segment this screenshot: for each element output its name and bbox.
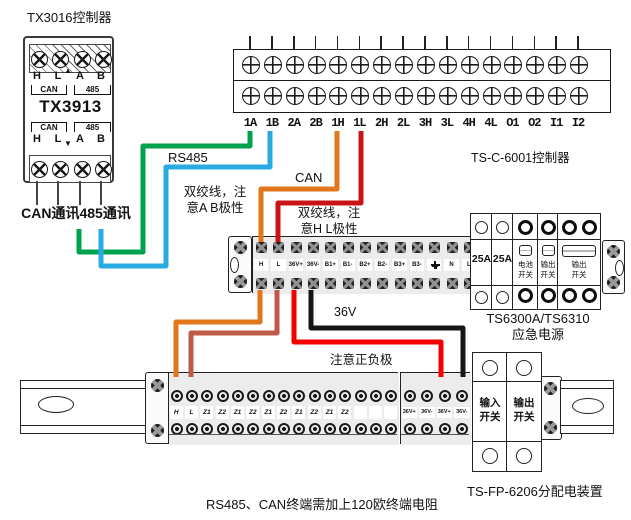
screw-terminal-x — [52, 51, 69, 68]
terminal-label: Z1 — [323, 406, 336, 419]
bottom-terminal-strip: HLZ1Z2Z1Z2Z1Z2Z1Z2Z1Z2 — [168, 372, 398, 444]
terminal-screw — [370, 390, 382, 402]
terminal-label — [354, 406, 367, 419]
switch-rocker — [562, 245, 596, 257]
controller-terminal-label: 3H — [413, 116, 437, 130]
terminal-screw — [273, 278, 284, 289]
module-line — [538, 285, 558, 286]
terminal-label: Z2 — [338, 406, 351, 419]
psu-fuse-module: 25A — [491, 213, 514, 310]
device-model-label: TX3913 — [25, 97, 116, 117]
controller-terminal-label: 2A — [282, 116, 306, 130]
controller-pin — [315, 36, 317, 49]
switch-label: 电池 开关 — [513, 260, 538, 279]
switch-terminal — [541, 288, 556, 303]
bracket-screw — [234, 275, 247, 288]
terminal-screw — [186, 423, 198, 435]
switch-terminal — [562, 288, 577, 303]
controller-terminal — [504, 56, 522, 74]
terminal-screw — [325, 242, 336, 253]
fuse-rating-label: 25A — [471, 253, 492, 265]
controller-terminal-label: 2H — [369, 116, 393, 130]
module-line — [492, 239, 513, 240]
controller-terminal — [373, 87, 391, 105]
terminal-label — [384, 406, 397, 419]
h-down-wire — [176, 290, 260, 377]
terminal-screw — [293, 423, 305, 435]
controller-terminal — [417, 87, 435, 105]
terminal-label: B2+ — [358, 259, 372, 271]
bottom-terminal-cell: Z2 — [246, 373, 262, 445]
controller-pin — [271, 36, 273, 49]
mid-terminal-cell: B1+ — [322, 237, 340, 294]
rail-slot — [572, 398, 604, 414]
terminal-screw — [247, 423, 259, 435]
switch-terminal — [541, 220, 556, 235]
485-bracket-bottom: 485 — [74, 122, 111, 132]
bracket-screw — [607, 276, 620, 289]
fuse-terminal — [496, 221, 509, 234]
switch-terminal — [516, 360, 532, 376]
bottom-terminal-cell: Z2 — [276, 373, 292, 445]
tx3913-device: CAN 485 TX3913 CAN 485 — [23, 36, 114, 183]
terminal-screw — [325, 278, 336, 289]
bracket-slot — [230, 257, 239, 273]
controller-pin — [249, 36, 251, 49]
terminal-label: N — [444, 259, 458, 271]
bracket-screw — [544, 421, 557, 434]
switch-label: 输出 开关 — [538, 260, 558, 279]
module-line — [471, 285, 492, 286]
module-line — [513, 239, 538, 240]
terminal-screw — [309, 423, 321, 435]
tx3016-title: TX3016控制器 — [27, 7, 112, 26]
switch-terminal — [516, 448, 532, 464]
controller-terminal — [264, 87, 282, 105]
note-can: CAN — [295, 170, 322, 185]
controller-pin — [337, 36, 339, 49]
terminal-screw — [370, 423, 382, 435]
mid-terminal-cell: B1- — [340, 237, 358, 294]
psu-fuse-module: 25A — [470, 213, 493, 310]
mid-terminal-cell: B2+ — [357, 237, 375, 294]
terminal-label: Z2 — [216, 406, 229, 419]
controller-terminal — [417, 56, 435, 74]
controller-terminal — [308, 87, 326, 105]
module-line — [507, 381, 541, 382]
mid-terminal-cell: 36V+ — [288, 237, 306, 294]
controller-terminal — [439, 87, 457, 105]
controller-terminal — [351, 56, 369, 74]
controller-terminal — [504, 87, 522, 105]
rail-slot — [38, 396, 74, 413]
controller-terminal-label: 2B — [304, 116, 328, 130]
terminal-label: B3+ — [392, 259, 406, 271]
terminal-screw — [343, 278, 354, 289]
terminal-label: L — [271, 259, 285, 271]
controller-terminal — [483, 56, 501, 74]
mid-terminal-cell — [426, 237, 444, 294]
terminal-label: 36V+ — [437, 407, 453, 418]
terminal-label: Z2 — [277, 406, 290, 419]
terminal-screw — [291, 242, 302, 253]
terminal-screw — [247, 390, 259, 402]
switch-terminal — [562, 220, 577, 235]
terminal-lead — [100, 181, 101, 205]
terminal-screw — [278, 423, 290, 435]
controller-terminal — [242, 56, 260, 74]
dist-switch-label: 输出 开关 — [507, 397, 541, 424]
screw-terminal-x — [95, 161, 112, 178]
bracket-screw — [151, 379, 164, 392]
controller-terminal-label: I1 — [544, 116, 568, 130]
controller-terminal — [439, 56, 457, 74]
module-line — [473, 441, 507, 442]
terminal-screw — [171, 390, 183, 402]
controller-terminal — [308, 56, 326, 74]
terminal-screw — [278, 390, 290, 402]
bracket-screw — [607, 245, 620, 258]
end-bracket-left-bottom — [145, 372, 170, 444]
mid-terminal-cell: 36V- — [305, 237, 323, 294]
screw-terminal-x — [31, 161, 48, 178]
terminal-screw — [429, 242, 440, 253]
terminal-screw — [256, 242, 267, 253]
terminal-screw — [439, 390, 451, 402]
terminal-screw — [324, 390, 336, 402]
module-line — [538, 239, 558, 240]
terminal-screw — [412, 242, 423, 253]
terminal-screw — [355, 390, 367, 402]
bottom-terminal-cell: Z1 — [200, 373, 216, 445]
v36-terminal-block: 36V+36V-36V+36V- — [400, 372, 470, 444]
v36-terminal-cell: 36V+ — [401, 373, 420, 445]
module-line — [492, 285, 513, 286]
mid-terminal-cell: H — [253, 237, 271, 294]
terminal-screw — [339, 390, 351, 402]
bottom-terminal-cell: Z2 — [307, 373, 323, 445]
terminal-label: H — [254, 259, 268, 271]
controller-terminal — [329, 56, 347, 74]
controller-terminal — [461, 56, 479, 74]
controller-terminal — [395, 56, 413, 74]
terminal-label: B3- — [410, 259, 424, 271]
device-pin-label: B — [93, 133, 109, 146]
controller-pin — [424, 36, 426, 49]
end-bracket-right-bottom — [540, 376, 562, 440]
terminal-screw — [343, 242, 354, 253]
module-line — [473, 381, 507, 382]
bottom-terminal-cell: L — [184, 373, 200, 445]
terminal-label: B1+ — [323, 259, 337, 271]
v36-terminal-cell: 36V- — [454, 373, 472, 445]
switch-label: 输出 开关 — [558, 260, 600, 279]
device-pin-label: A — [72, 70, 88, 83]
controller-pin — [359, 36, 361, 49]
terminal-lead — [36, 181, 37, 205]
switch-terminal — [518, 220, 533, 235]
terminal-label — [427, 259, 441, 271]
bottom-terminal-cell: Z1 — [261, 373, 277, 445]
controller-pin — [512, 36, 514, 49]
mid-terminal-cell: B3- — [409, 237, 427, 294]
terminal-screw — [421, 390, 433, 402]
device-caption: CAN通讯485通讯 — [2, 203, 150, 223]
device-pin-label: H — [29, 70, 45, 83]
controller-terminal-label: 3L — [435, 116, 459, 130]
terminal-screw — [324, 423, 336, 435]
terminal-screw — [395, 242, 406, 253]
psu-switch-module: 输出 开关 — [557, 213, 601, 310]
terminal-label: 36V- — [306, 259, 320, 271]
controller-terminal-label: 4L — [479, 116, 503, 130]
switch-terminal — [582, 288, 597, 303]
terminal-label: 36V+ — [289, 259, 303, 271]
switch-rocker — [542, 245, 555, 256]
terminal-label: Z2 — [246, 406, 259, 419]
terminal-screw — [339, 423, 351, 435]
controller-terminal — [329, 87, 347, 105]
terminal-screw — [385, 390, 397, 402]
switch-rocker — [519, 245, 532, 256]
controller-terminal-label: O1 — [500, 116, 524, 130]
dist-switch-module: 输入 开关 — [472, 352, 508, 472]
device-pin-label: H — [29, 133, 45, 146]
l-down-wire — [191, 290, 277, 377]
v36-terminal-cell: 36V- — [419, 373, 438, 445]
screw-terminal-x — [74, 161, 91, 178]
controller-terminal-label: 1A — [238, 116, 262, 130]
can-bracket-top: CAN — [31, 85, 67, 95]
mid-terminal-cell: B3+ — [391, 237, 409, 294]
terminal-lead — [57, 181, 58, 205]
controller-terminal — [526, 87, 544, 105]
terminal-screw — [232, 423, 244, 435]
mid-terminal-cell: B2- — [374, 237, 392, 294]
terminal-screw — [377, 278, 388, 289]
din-rail-right — [560, 380, 614, 434]
terminal-label: B1- — [341, 259, 355, 271]
controller-pin — [293, 36, 295, 49]
bottom-terminal-cell — [368, 373, 384, 445]
strip-divider — [234, 80, 610, 81]
end-bracket-left-mid — [228, 236, 252, 293]
terminal-screw — [429, 278, 440, 289]
controller-pin — [446, 36, 448, 49]
can-bracket-bottom: CAN — [31, 122, 67, 132]
controller-terminal — [286, 56, 304, 74]
controller-terminal — [242, 87, 260, 105]
controller-terminal — [395, 87, 413, 105]
terminal-screw — [308, 242, 319, 253]
din-rail-left — [20, 380, 150, 434]
footer-note: RS485、CAN终端需加上120欧终端电阻 — [206, 494, 438, 513]
module-line — [513, 285, 538, 286]
controller-terminal-label: 4H — [457, 116, 481, 130]
device-pin-label: B — [93, 70, 109, 83]
bracket-screw — [151, 424, 164, 437]
note-twisted-ab: 双绞线，注 意A B极性 — [170, 184, 260, 216]
controller-terminal — [373, 56, 391, 74]
bottom-terminal-cell — [353, 373, 369, 445]
controller-terminal — [351, 87, 369, 105]
terminal-label: B2- — [375, 259, 389, 271]
device-pin-label: L — [50, 133, 66, 146]
ground-icon — [430, 261, 440, 270]
terminal-screw — [217, 390, 229, 402]
terminal-label — [369, 406, 382, 419]
controller-pin — [534, 36, 536, 49]
note-polarity: 注意正负极 — [330, 349, 393, 368]
terminal-screw — [456, 390, 468, 402]
end-bracket-right-mid — [602, 240, 625, 294]
terminal-screw — [395, 278, 406, 289]
terminal-screw — [456, 423, 468, 435]
device-pin-label: A — [72, 133, 88, 146]
controller-terminal-label: 1L — [347, 116, 371, 130]
terminal-screw — [309, 390, 321, 402]
terminal-label: 36V- — [419, 407, 435, 418]
terminal-label: Z2 — [308, 406, 321, 419]
controller-terminal-label: 1H — [325, 116, 349, 130]
terminal-screw — [404, 390, 416, 402]
terminal-screw — [447, 242, 458, 253]
bottom-terminal-cell: Z2 — [215, 373, 231, 445]
bottom-terminal-cell: Z1 — [230, 373, 246, 445]
controller-pin — [555, 36, 557, 49]
switch-terminal — [582, 220, 597, 235]
bracket-screw — [234, 241, 247, 254]
terminal-screw — [360, 278, 371, 289]
controller-terminal-label: 2L — [391, 116, 415, 130]
module-line — [507, 441, 541, 442]
device-pin-label: L — [50, 70, 66, 83]
controller-terminal — [461, 87, 479, 105]
screw-terminal-x — [74, 51, 91, 68]
terminal-screw — [360, 242, 371, 253]
switch-terminal — [482, 360, 498, 376]
bottom-terminal-cell — [384, 373, 399, 445]
controller-pin — [402, 36, 404, 49]
mid-terminal-cell: L — [270, 237, 288, 294]
mid-terminal-strip: HL36V+36V-B1+B1-B2+B2-B3+B3-NL — [252, 236, 477, 293]
terminal-label: H — [170, 406, 183, 419]
dist-label: TS-FP-6206分配电装置 — [467, 481, 603, 500]
bracket-slot — [615, 260, 624, 276]
485-bracket-top: 485 — [74, 85, 111, 95]
terminal-screw — [256, 278, 267, 289]
terminal-lead — [79, 181, 80, 205]
note-36v: 36V — [334, 305, 356, 319]
terminal-label: Z1 — [292, 406, 305, 419]
module-line — [558, 285, 600, 286]
terminal-label: Z1 — [262, 406, 275, 419]
terminal-screw — [217, 423, 229, 435]
wiring-diagram: TX3016控制器 CAN 485 TX3913 CAN 485 ▲ ▼ CAN… — [0, 0, 631, 520]
fuse-terminal — [475, 291, 488, 304]
bottom-terminal-cell: H — [169, 373, 185, 445]
psu-switch-module: 输出 开关 — [537, 213, 559, 310]
controller-terminal — [483, 87, 501, 105]
terminal-screw — [439, 423, 451, 435]
controller-pin — [577, 36, 579, 49]
bottom-terminal-cell: Z1 — [322, 373, 338, 445]
terminal-screw — [377, 242, 388, 253]
terminal-label: 36V- — [454, 407, 470, 418]
bottom-terminal-cell: Z2 — [338, 373, 354, 445]
controller-terminal — [570, 87, 588, 105]
psu-switch-module: 电池 开关 — [512, 213, 539, 310]
controller-terminal — [548, 56, 566, 74]
controller-terminal — [548, 87, 566, 105]
terminal-screw — [232, 390, 244, 402]
fuse-terminal — [475, 221, 488, 234]
dist-switch-module: 输出 开关 — [506, 352, 542, 472]
controller-terminal — [264, 56, 282, 74]
terminal-screw — [291, 278, 302, 289]
terminal-screw — [263, 390, 275, 402]
screw-terminal-x — [52, 161, 69, 178]
terminal-screw — [201, 390, 213, 402]
terminal-label: Z1 — [231, 406, 244, 419]
terminal-label: L — [185, 406, 198, 419]
switch-terminal — [482, 448, 498, 464]
terminal-screw — [293, 390, 305, 402]
controller-terminal — [570, 56, 588, 74]
terminal-screw — [263, 423, 275, 435]
controller-label: TS-C-6001控制器 — [471, 147, 570, 166]
dist-switch-label: 输入 开关 — [473, 397, 507, 424]
mid-terminal-cell: N — [443, 237, 461, 294]
terminal-screw — [171, 423, 183, 435]
terminal-screw — [186, 390, 198, 402]
bottom-terminal-cell: Z1 — [292, 373, 308, 445]
screw-terminal-x — [31, 51, 48, 68]
controller-pin — [468, 36, 470, 49]
note-rs485: RS485 — [168, 150, 208, 165]
screw-terminal-x — [95, 51, 112, 68]
switch-terminal — [518, 288, 533, 303]
psu-label: TS6300A/TS6310 应急电源 — [462, 311, 614, 342]
module-line — [558, 239, 600, 240]
controller-pin — [490, 36, 492, 49]
controller-pin — [380, 36, 382, 49]
terminal-screw — [421, 423, 433, 435]
terminal-screw — [385, 423, 397, 435]
module-line — [471, 239, 492, 240]
terminal-screw — [273, 242, 284, 253]
controller-terminal-label: 1B — [260, 116, 284, 130]
terminal-screw — [412, 278, 423, 289]
terminal-screw — [308, 278, 319, 289]
controller-terminal — [286, 87, 304, 105]
fuse-rating-label: 25A — [492, 253, 513, 265]
controller-terminal-label: O2 — [522, 116, 546, 130]
terminal-label: Z1 — [200, 406, 213, 419]
terminal-screw — [355, 423, 367, 435]
terminal-screw — [201, 423, 213, 435]
terminal-screw — [447, 278, 458, 289]
v36-terminal-cell: 36V+ — [436, 373, 455, 445]
controller-terminal — [526, 56, 544, 74]
terminal-label: 36V+ — [402, 407, 418, 418]
controller-strip — [233, 49, 611, 113]
fuse-terminal — [496, 291, 509, 304]
terminal-screw — [404, 423, 416, 435]
note-twisted-hl: 双绞线，注 意H L极性 — [286, 205, 372, 237]
bracket-screw — [544, 382, 557, 395]
controller-terminal-label: I2 — [566, 116, 590, 130]
